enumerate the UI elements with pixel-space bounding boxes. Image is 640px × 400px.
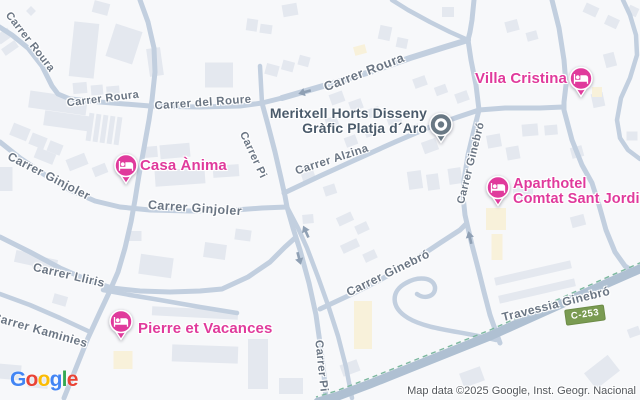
road [260, 66, 262, 103]
building [248, 339, 268, 389]
building [354, 301, 372, 349]
poi-label-line: Casa Ànima [140, 158, 227, 174]
poi-label-line: Meritxell Horts Disseny [270, 106, 427, 121]
building [282, 3, 299, 17]
building [259, 24, 272, 35]
building [205, 63, 233, 88]
building [114, 351, 133, 369]
building [627, 132, 638, 141]
map-attribution: Map data ©2025 Google, Inst. Geogr. Naci… [407, 385, 636, 397]
poi-pin-villa-cristina-lodging-icon[interactable] [568, 66, 594, 98]
poi-label-line: Comtat Sant Jordi [513, 192, 640, 207]
poi-pin-aparthotel-comtat-lodging-icon[interactable] [485, 175, 511, 207]
poi-pin-casa-anima-lodging-icon[interactable] [113, 153, 139, 185]
building [302, 214, 314, 224]
building [522, 123, 539, 136]
building [407, 170, 423, 190]
building [0, 167, 13, 191]
poi-label-line: Villa Cristina [475, 71, 567, 87]
building [234, 228, 251, 241]
google-logo[interactable]: Google [10, 368, 78, 392]
google-logo-letter: o [38, 368, 50, 391]
poi-label-line: Pierre et Vacances [138, 321, 272, 337]
google-logo-letter: G [10, 368, 26, 391]
building [246, 18, 259, 31]
poi-label-villa-cristina[interactable]: Villa Cristina [475, 71, 567, 87]
building [73, 82, 88, 94]
google-logo-letter: e [67, 368, 78, 391]
building [505, 145, 520, 160]
building [203, 242, 227, 260]
poi-label-casa-anima[interactable]: Casa Ànima [140, 158, 227, 174]
google-logo-letter: o [26, 368, 38, 391]
building [486, 133, 502, 148]
building [172, 344, 239, 363]
building [492, 234, 503, 260]
building [426, 173, 440, 191]
building [486, 208, 506, 230]
poi-label-pierre-et-vacances[interactable]: Pierre et Vacances [138, 321, 272, 337]
building [442, 7, 454, 17]
poi-label-aparthotel-comtat[interactable]: AparthotelComtat Sant Jordi [513, 177, 640, 207]
building [544, 124, 558, 135]
building [279, 378, 303, 394]
poi-pin-pierre-et-vacances-lodging-icon[interactable] [108, 309, 134, 341]
poi-label-line: Gràfic Platja d´Aro [270, 121, 427, 136]
poi-pin-meritxell-horts-dot-icon[interactable] [428, 112, 454, 144]
poi-label-line: Aparthotel [513, 177, 640, 192]
google-logo-letter: g [50, 368, 62, 391]
map-canvas[interactable]: Carrer RouraCarrer RouraCarrer del Roure… [0, 0, 640, 400]
poi-label-meritxell-horts[interactable]: Meritxell Horts DissenyGràfic Platja d´A… [270, 106, 427, 135]
